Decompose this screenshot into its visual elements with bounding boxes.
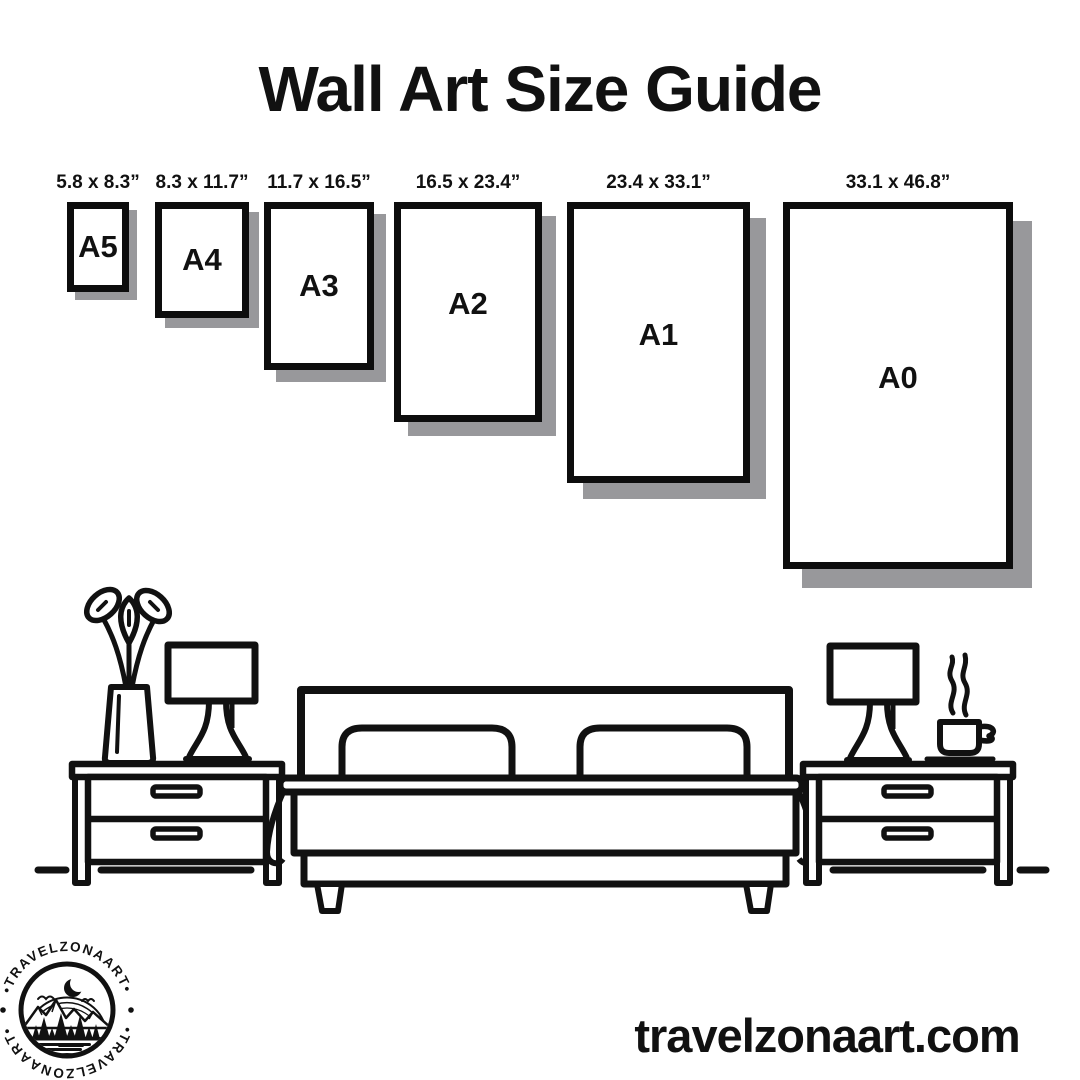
left-table-lamp xyxy=(168,645,255,759)
pillow-left xyxy=(342,728,512,782)
size-code-label: A2 xyxy=(448,286,488,322)
size-dimensions-label-a0: 33.1 x 46.8” xyxy=(846,172,951,194)
bed-leg-right xyxy=(746,884,771,911)
steam-icon xyxy=(963,655,967,715)
right-table-lamp xyxy=(830,646,916,760)
size-frame-a5: A5 xyxy=(67,202,129,292)
size-dimensions-label-a4: 8.3 x 11.7” xyxy=(156,172,249,194)
right-nightstand xyxy=(803,764,1013,883)
size-code-label: A1 xyxy=(639,317,679,353)
steam-icon xyxy=(950,657,954,713)
bedroom-illustration xyxy=(0,580,1080,925)
size-frame-a0: A0 xyxy=(783,202,1013,569)
bed xyxy=(267,690,815,911)
travelzonaart-logo: •TRAVELZONAART• •TRAVELZONAART• xyxy=(0,935,142,1080)
coffee-cup xyxy=(927,655,993,759)
left-nightstand xyxy=(72,764,282,883)
size-guide-infographic: Wall Art Size Guide 5.8 x 8.3”A58.3 x 11… xyxy=(0,0,1080,1080)
page-title: Wall Art Size Guide xyxy=(0,52,1080,126)
size-code-label: A4 xyxy=(182,242,222,278)
ring-dot-left xyxy=(0,1007,6,1013)
size-code-label: A5 xyxy=(78,229,118,265)
size-dimensions-label-a3: 11.7 x 16.5” xyxy=(267,172,371,194)
pillow-right xyxy=(580,728,747,782)
size-frame-a4: A4 xyxy=(155,202,249,318)
size-code-label: A3 xyxy=(299,268,339,304)
size-dimensions-label-a1: 23.4 x 33.1” xyxy=(606,172,711,194)
size-code-label: A0 xyxy=(878,360,918,396)
ring-dot-right xyxy=(128,1007,134,1013)
bed-leg-left xyxy=(317,884,342,911)
size-frame-a1: A1 xyxy=(567,202,750,483)
vase-with-plant xyxy=(81,583,175,763)
size-dimensions-label-a5: 5.8 x 8.3” xyxy=(56,172,139,194)
size-frame-a3: A3 xyxy=(264,202,374,370)
website-url: travelzonaart.com xyxy=(634,1008,1019,1063)
size-dimensions-label-a2: 16.5 x 23.4” xyxy=(416,172,521,194)
size-frame-a2: A2 xyxy=(394,202,542,422)
